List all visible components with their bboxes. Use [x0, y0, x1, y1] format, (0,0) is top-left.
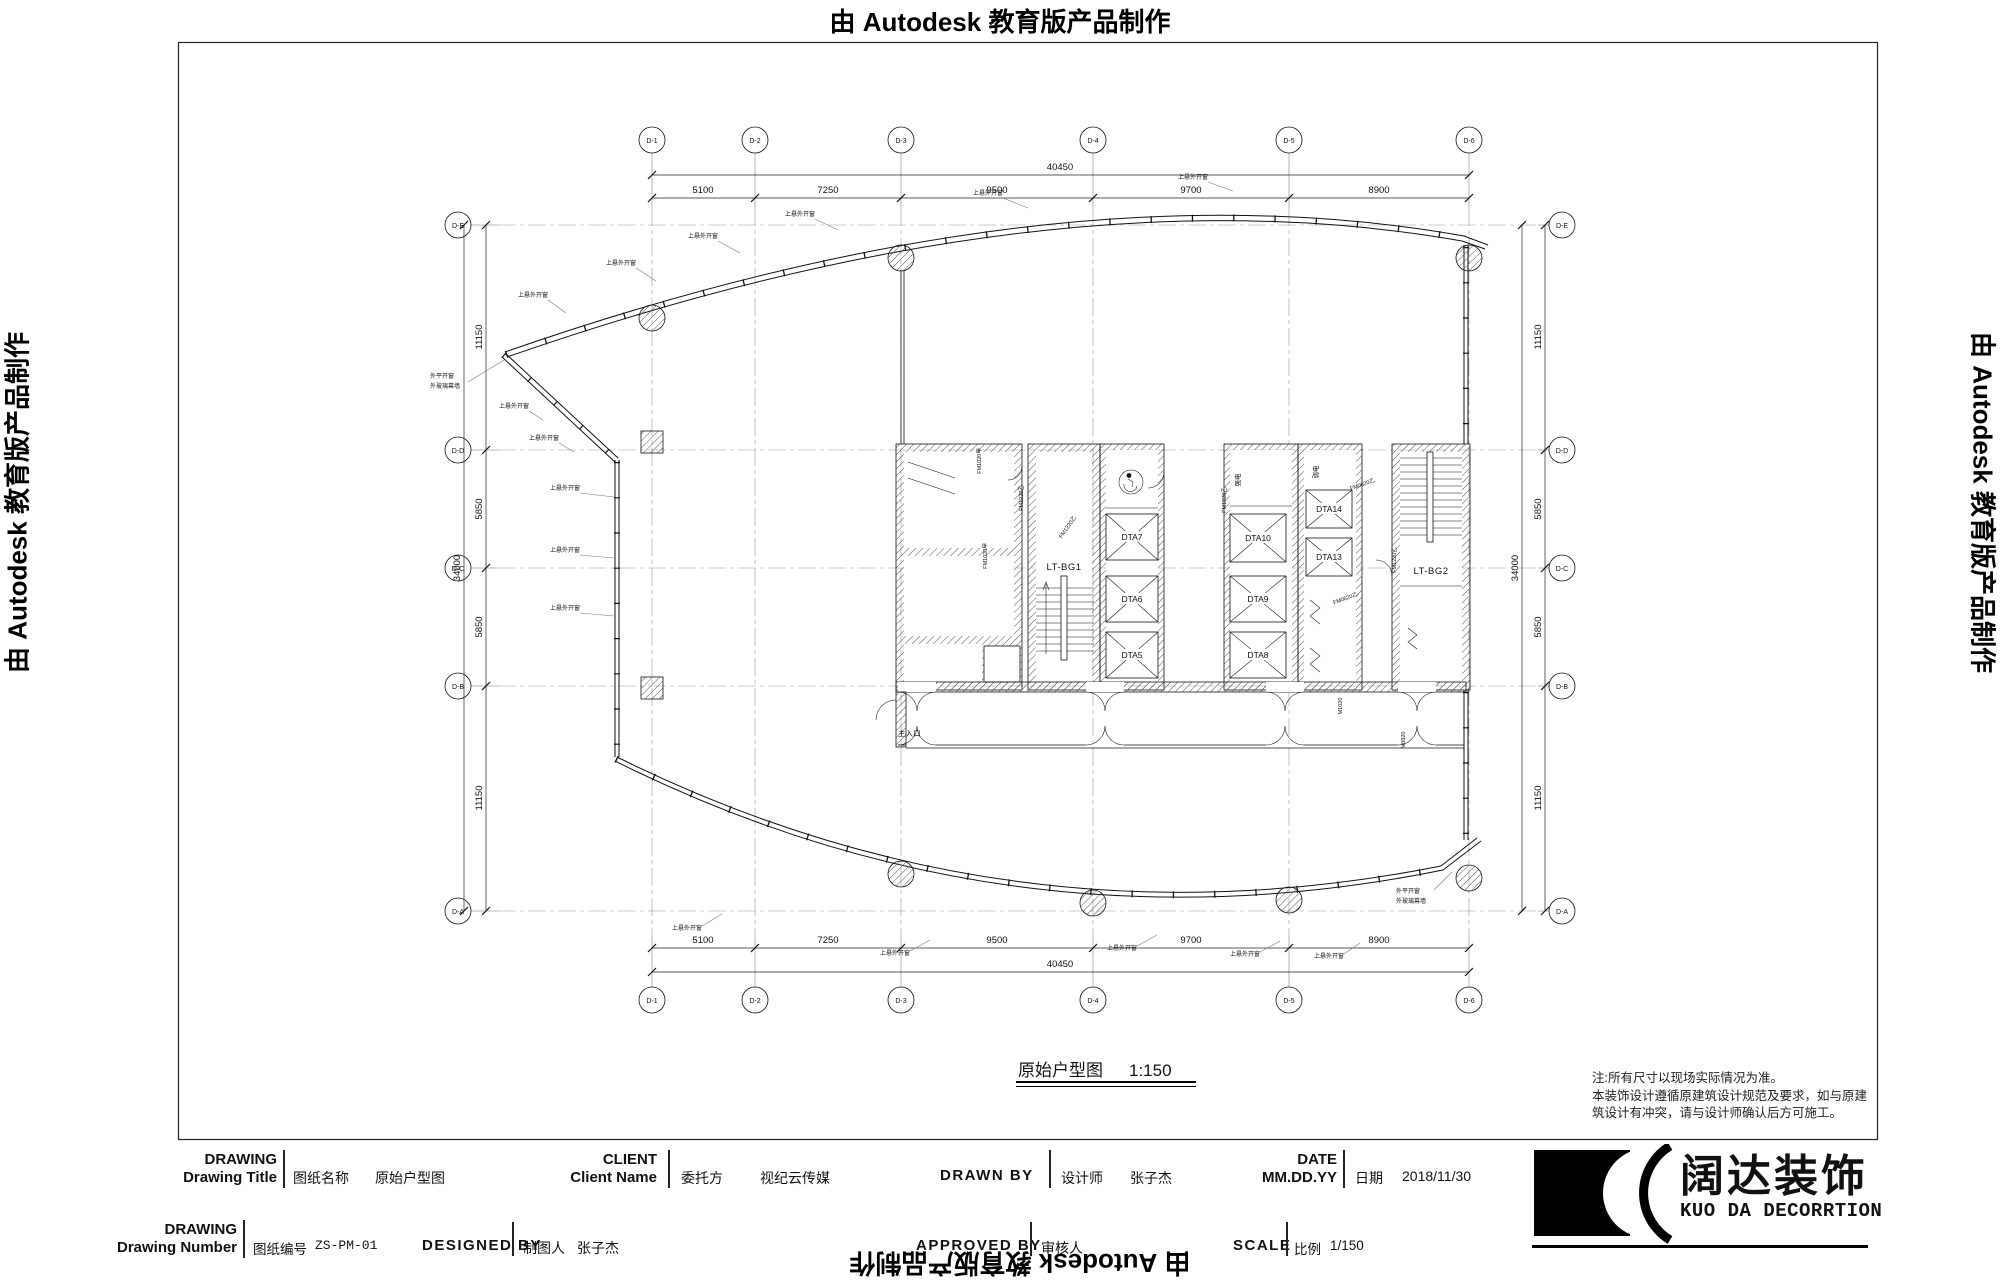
grid-bubble: D-5	[1276, 127, 1302, 153]
svg-text:上悬外开窗: 上悬外开窗	[973, 189, 1003, 197]
svg-text:上悬外开窗: 上悬外开窗	[1314, 952, 1344, 960]
titleblock-label-drawing-number: DRAWING Drawing Number	[110, 1221, 237, 1257]
svg-text:DTA14: DTA14	[1316, 504, 1342, 514]
titleblock-divider	[1343, 1150, 1345, 1188]
svg-text:上悬外开窗: 上悬外开窗	[606, 259, 636, 267]
dim-bottom: 5100	[692, 935, 713, 946]
window-label: 上悬外开窗	[550, 546, 614, 558]
plan-title-underline	[1016, 1081, 1196, 1083]
dim-top: 7250	[817, 185, 838, 196]
window-label: 上悬外开窗	[880, 940, 930, 957]
titleblock-divider	[283, 1150, 285, 1188]
elevator-car: DTA10	[1230, 514, 1286, 562]
window-label: 上悬外开窗	[785, 210, 838, 230]
svg-text:D-1: D-1	[646, 998, 657, 1005]
column-round	[1276, 887, 1302, 913]
svg-text:D-D: D-D	[452, 448, 464, 455]
company-logo: 阔达装饰 KUO DA DECORRTION	[1532, 1144, 1868, 1254]
plan-title: 原始户型图1:150	[1018, 1056, 1172, 1081]
svg-text:DTA8: DTA8	[1247, 650, 1268, 660]
grid-bubble: D-1	[639, 127, 665, 153]
note-line: 筑设计有冲突，请与设计师确认后方可施工。	[1592, 1105, 1867, 1123]
svg-text:D-A: D-A	[1556, 909, 1568, 916]
window-label: 上悬外开窗	[973, 189, 1028, 208]
svg-text:D-4: D-4	[1087, 998, 1098, 1005]
svg-text:D-E: D-E	[1556, 223, 1568, 230]
svg-text:上悬外开窗: 上悬外开窗	[518, 291, 548, 299]
window-label: 上悬外开窗	[672, 914, 722, 932]
dim-left: 5850	[474, 616, 485, 637]
grid-bubble: D-A	[445, 898, 471, 924]
window-label: 上悬外开窗	[688, 232, 740, 253]
svg-text:上悬外开窗: 上悬外开窗	[688, 232, 718, 240]
notes: 注:所有尺寸以现场实际情况为准。 本装饰设计遵循原建筑设计规范及要求，如与原建 …	[1592, 1070, 1867, 1123]
door-tag: M1020	[1338, 698, 1344, 715]
grid-bubble: D-6	[1456, 127, 1482, 153]
entrance-label: 主入口	[898, 728, 921, 738]
svg-text:D-5: D-5	[1283, 138, 1294, 145]
dim-top: 5100	[692, 185, 713, 196]
door-tag: M0820	[1401, 732, 1407, 749]
grid-bubble: D-B	[1549, 673, 1575, 699]
titleblock-zh-approved-by: 审核人	[1041, 1238, 1083, 1258]
client-value: 视纪云传媒	[760, 1168, 830, 1188]
svg-text:D-C: D-C	[1556, 566, 1568, 573]
drawing-number-value: ZS-PM-01	[315, 1238, 377, 1253]
grid-bubble: D-3	[888, 987, 914, 1013]
door-tag: FM1020甲	[976, 448, 983, 474]
svg-text:D-6: D-6	[1463, 998, 1474, 1005]
svg-text:上悬外开窗: 上悬外开窗	[1230, 950, 1260, 958]
dim-top: 9700	[1180, 185, 1201, 196]
logo-zh: 阔达装饰	[1680, 1140, 1868, 1204]
dim-bottom-total: 40450	[1047, 959, 1073, 970]
svg-text:DTA9: DTA9	[1247, 594, 1268, 604]
svg-text:上悬外开窗: 上悬外开窗	[672, 924, 702, 932]
door-tag: FM1020乙	[1221, 487, 1228, 513]
logo-underline	[1532, 1245, 1868, 1248]
designed-by-value: 张子杰	[577, 1238, 619, 1258]
door-tag: FM1220乙	[1018, 485, 1025, 511]
scale-value: 1/150	[1330, 1238, 1364, 1253]
window-label: 上悬外开窗	[1107, 935, 1157, 952]
svg-text:D-3: D-3	[895, 138, 906, 145]
svg-text:D-2: D-2	[749, 998, 760, 1005]
grid-bubble: D-1	[639, 987, 665, 1013]
column-square	[641, 677, 663, 699]
logo-en: KUO DA DECORRTION	[1680, 1200, 1882, 1222]
column-round	[888, 861, 914, 887]
svg-text:上悬外开窗: 上悬外开窗	[1178, 173, 1208, 181]
svg-text:外平开窗: 外平开窗	[430, 372, 454, 380]
dim-left: 5850	[474, 498, 485, 519]
elevator-car: DTA13	[1306, 538, 1352, 576]
date-value: 2018/11/30	[1402, 1168, 1471, 1184]
svg-text:DTA13: DTA13	[1316, 552, 1342, 562]
elevator-car: DTA8	[1230, 632, 1286, 678]
window-label: 上悬外开窗	[606, 259, 656, 281]
titleblock-label-drawing-title: DRAWING Drawing Title	[150, 1151, 277, 1187]
titleblock-zh-client: 委托方	[681, 1168, 723, 1188]
svg-text:外玻璃幕墙: 外玻璃幕墙	[1396, 897, 1426, 905]
wheelchair-icon	[1127, 473, 1132, 478]
dim-bottom: 9500	[986, 935, 1007, 946]
grid-bubble: D-2	[742, 987, 768, 1013]
titleblock-divider	[668, 1150, 670, 1188]
svg-text:上悬外开窗: 上悬外开窗	[1107, 944, 1137, 952]
svg-text:上悬外开窗: 上悬外开窗	[550, 604, 580, 612]
svg-text:上悬外开窗: 上悬外开窗	[499, 402, 529, 410]
grid-bubble: D-2	[742, 127, 768, 153]
grid-bubble: D-C	[1549, 555, 1575, 581]
titleblock-label-date: DATE MM.DD.YY	[1210, 1151, 1337, 1187]
grid-bubble: D-E	[445, 212, 471, 238]
titleblock-divider	[1030, 1222, 1032, 1256]
elevator-car: DTA7	[1106, 514, 1158, 560]
window-label: 上悬外开窗	[550, 484, 614, 497]
svg-text:DTA7: DTA7	[1121, 532, 1142, 542]
logo-mark-icon	[1532, 1144, 1682, 1244]
door-tag: FM1220乙	[1391, 547, 1398, 573]
titleblock-zh-designed-by: 制图人	[523, 1238, 565, 1258]
core-walls	[896, 444, 1470, 747]
window-label: 上悬外开窗	[550, 604, 614, 616]
dim-right: 11150	[1533, 785, 1544, 810]
svg-text:D-5: D-5	[1283, 998, 1294, 1005]
stair-label: LT-BG1	[1046, 562, 1081, 573]
grid-bubble: D-4	[1080, 127, 1106, 153]
note-line: 本装饰设计遵循原建筑设计规范及要求，如与原建	[1592, 1088, 1867, 1106]
dim-top-total: 40450	[1047, 162, 1073, 173]
room-label: 强电	[1233, 473, 1242, 487]
svg-text:D-4: D-4	[1087, 138, 1098, 145]
svg-text:DTA5: DTA5	[1121, 650, 1142, 660]
dim-right: 5850	[1533, 616, 1544, 637]
column-round	[1080, 890, 1106, 916]
titleblock-zh-date: 日期	[1355, 1168, 1383, 1188]
grid-bubble: D-6	[1456, 987, 1482, 1013]
titleblock-zh-drawing-title: 图纸名称	[293, 1168, 349, 1188]
room-label: 弱电	[1311, 465, 1320, 479]
svg-text:上悬外开窗: 上悬外开窗	[880, 949, 910, 957]
svg-text:D-2: D-2	[749, 138, 760, 145]
svg-text:D-1: D-1	[646, 138, 657, 145]
grid-bubble: D-4	[1080, 987, 1106, 1013]
elevator-car: DTA9	[1230, 576, 1286, 622]
drawn-by-value: 张子杰	[1130, 1168, 1172, 1188]
titleblock-zh-drawn-by: 设计师	[1061, 1168, 1103, 1188]
titleblock-divider	[243, 1220, 245, 1258]
window-label: 上悬外开窗	[529, 434, 574, 452]
stair-label: LT-BG2	[1413, 566, 1448, 577]
dim-left: 11150	[474, 785, 485, 810]
elevator-car: DTA14	[1306, 490, 1352, 528]
titleblock-label-drawn-by: DRAWN BY	[940, 1167, 1034, 1184]
svg-text:外平开窗: 外平开窗	[1396, 887, 1420, 895]
plan-title-scale: 1:150	[1129, 1061, 1172, 1080]
plan-title-text: 原始户型图	[1018, 1061, 1103, 1080]
svg-text:D-E: D-E	[452, 223, 464, 230]
titleblock-label-client: CLIENT Client Name	[530, 1151, 657, 1187]
svg-text:上悬外开窗: 上悬外开窗	[550, 484, 580, 492]
grid-bubble: D-3	[888, 127, 914, 153]
svg-text:D-A: D-A	[452, 909, 464, 916]
titleblock-divider	[1049, 1150, 1051, 1188]
svg-text:DTA6: DTA6	[1121, 594, 1142, 604]
svg-text:上悬外开窗: 上悬外开窗	[785, 210, 815, 218]
dim-right: 11150	[1533, 324, 1544, 349]
grid-bubble: D-B	[445, 673, 471, 699]
door-tag: FM1020甲	[982, 543, 989, 569]
dim-top: 8900	[1368, 185, 1389, 196]
window-label: 外平开窗 外玻璃幕墙	[430, 360, 504, 390]
note-line: 注:所有尺寸以现场实际情况为准。	[1592, 1070, 1867, 1088]
dim-left: 11150	[474, 324, 485, 349]
svg-text:上悬外开窗: 上悬外开窗	[550, 546, 580, 554]
column-square	[641, 431, 663, 453]
dim-bottom: 9700	[1180, 935, 1201, 946]
dim-bottom: 7250	[817, 935, 838, 946]
svg-text:D-B: D-B	[452, 684, 464, 691]
svg-text:D-B: D-B	[1556, 684, 1568, 691]
column-round	[639, 305, 665, 331]
titleblock-label-scale: SCALE	[1233, 1237, 1291, 1254]
grid-bubble: D-E	[1549, 212, 1575, 238]
grid-bubble: D-D	[445, 437, 471, 463]
svg-text:D-3: D-3	[895, 998, 906, 1005]
drawing-title-value: 原始户型图	[375, 1168, 445, 1188]
grid-bubble: D-D	[1549, 437, 1575, 463]
dim-right-total: 34000	[1510, 555, 1521, 581]
column-round	[1456, 865, 1482, 891]
svg-text:D-C: D-C	[452, 566, 464, 573]
grid-bubble: D-5	[1276, 987, 1302, 1013]
window-label: 上悬外开窗	[1230, 941, 1280, 958]
column-round	[888, 245, 914, 271]
grid-bubble: D-A	[1549, 898, 1575, 924]
titleblock-divider	[512, 1222, 514, 1256]
svg-text:D-D: D-D	[1556, 448, 1568, 455]
titleblock-divider	[1286, 1222, 1288, 1256]
window-label: 上悬外开窗	[518, 291, 566, 313]
svg-text:D-6: D-6	[1463, 138, 1474, 145]
titleblock-label-approved-by: APPROVED BY	[916, 1237, 1042, 1254]
window-label: 上悬外开窗	[1314, 943, 1360, 960]
elevator-car: DTA5	[1106, 632, 1158, 678]
svg-text:上悬外开窗: 上悬外开窗	[529, 434, 559, 442]
titleblock-zh-drawing-number: 图纸编号	[253, 1238, 307, 1258]
dim-bottom: 8900	[1368, 935, 1389, 946]
svg-text:DTA10: DTA10	[1245, 533, 1271, 543]
svg-text:外玻璃幕墙: 外玻璃幕墙	[430, 382, 460, 390]
elevator-car: DTA6	[1106, 576, 1158, 622]
plan-title-underline	[1016, 1086, 1196, 1087]
window-label: 上悬外开窗	[499, 402, 543, 420]
titleblock-zh-scale: 比例	[1294, 1238, 1321, 1258]
column-round	[1456, 245, 1482, 271]
dim-right: 5850	[1533, 498, 1544, 519]
